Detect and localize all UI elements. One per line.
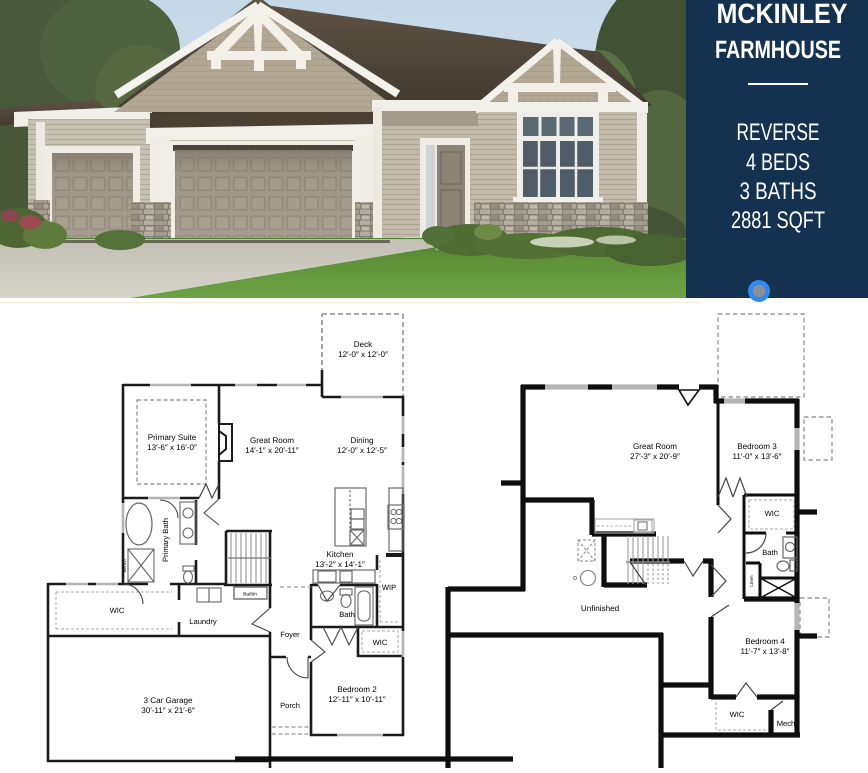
svg-text:12′-0″ x 12′-0″: 12′-0″ x 12′-0″ — [338, 350, 388, 359]
svg-text:Dining: Dining — [351, 436, 374, 445]
svg-text:11′-7″ x 13′-8″: 11′-7″ x 13′-8″ — [740, 647, 789, 656]
svg-text:12′-11″ x 10′-11″: 12′-11″ x 10′-11″ — [328, 695, 386, 704]
svg-text:Bench: Bench — [122, 559, 127, 572]
svg-text:Great Room: Great Room — [250, 436, 294, 445]
svg-text:WIC: WIC — [730, 710, 745, 719]
svg-text:3 Car Garage: 3 Car Garage — [143, 696, 193, 705]
svg-text:11′-0″ x 13′-6″: 11′-0″ x 13′-6″ — [732, 452, 781, 461]
svg-text:4 BEDS: 4 BEDS — [746, 149, 810, 176]
svg-text:WIP: WIP — [382, 583, 396, 592]
svg-text:Linen: Linen — [749, 575, 754, 587]
svg-text:2881 SQFT: 2881 SQFT — [731, 207, 825, 234]
svg-text:Primary Bath: Primary Bath — [161, 518, 170, 562]
svg-text:Great Room: Great Room — [633, 442, 677, 451]
svg-text:14′-1″ x 20′-11″: 14′-1″ x 20′-11″ — [245, 446, 299, 455]
svg-text:WIC: WIC — [765, 509, 780, 518]
svg-text:13′-2″ x 14′-1″: 13′-2″ x 14′-1″ — [315, 560, 365, 569]
svg-text:FARMHOUSE: FARMHOUSE — [715, 36, 841, 64]
svg-text:WIC: WIC — [373, 638, 388, 647]
svg-text:Porch: Porch — [280, 701, 300, 710]
svg-text:REVERSE: REVERSE — [737, 119, 820, 146]
svg-text:30′-11″ x 21′-6″: 30′-11″ x 21′-6″ — [141, 706, 195, 715]
svg-text:Bedroom 3: Bedroom 3 — [737, 442, 777, 451]
svg-text:27′-3″ x 20′-9″: 27′-3″ x 20′-9″ — [630, 452, 680, 461]
svg-text:Kitchen: Kitchen — [327, 550, 354, 559]
svg-text:12′-0″ x 12′-5″: 12′-0″ x 12′-5″ — [337, 446, 387, 455]
svg-text:Bedroom 2: Bedroom 2 — [337, 685, 377, 694]
svg-text:13′-6″ x 16′-0″: 13′-6″ x 16′-0″ — [147, 443, 197, 452]
svg-text:Bath: Bath — [762, 548, 778, 557]
svg-text:Builtin: Builtin — [243, 592, 257, 598]
svg-text:Deck: Deck — [354, 340, 373, 349]
svg-text:Foyer: Foyer — [280, 630, 300, 639]
svg-text:WIC: WIC — [110, 606, 125, 615]
svg-text:Unfinished: Unfinished — [581, 604, 619, 613]
svg-text:Primary Suite: Primary Suite — [148, 433, 197, 442]
svg-text:Bath: Bath — [339, 610, 355, 619]
svg-text:MCKINLEY: MCKINLEY — [717, 0, 848, 29]
svg-text:Mech: Mech — [777, 719, 796, 728]
svg-text:Laundry: Laundry — [189, 617, 217, 626]
svg-text:Bedroom 4: Bedroom 4 — [745, 637, 785, 646]
svg-text:3 BATHS: 3 BATHS — [740, 178, 817, 205]
